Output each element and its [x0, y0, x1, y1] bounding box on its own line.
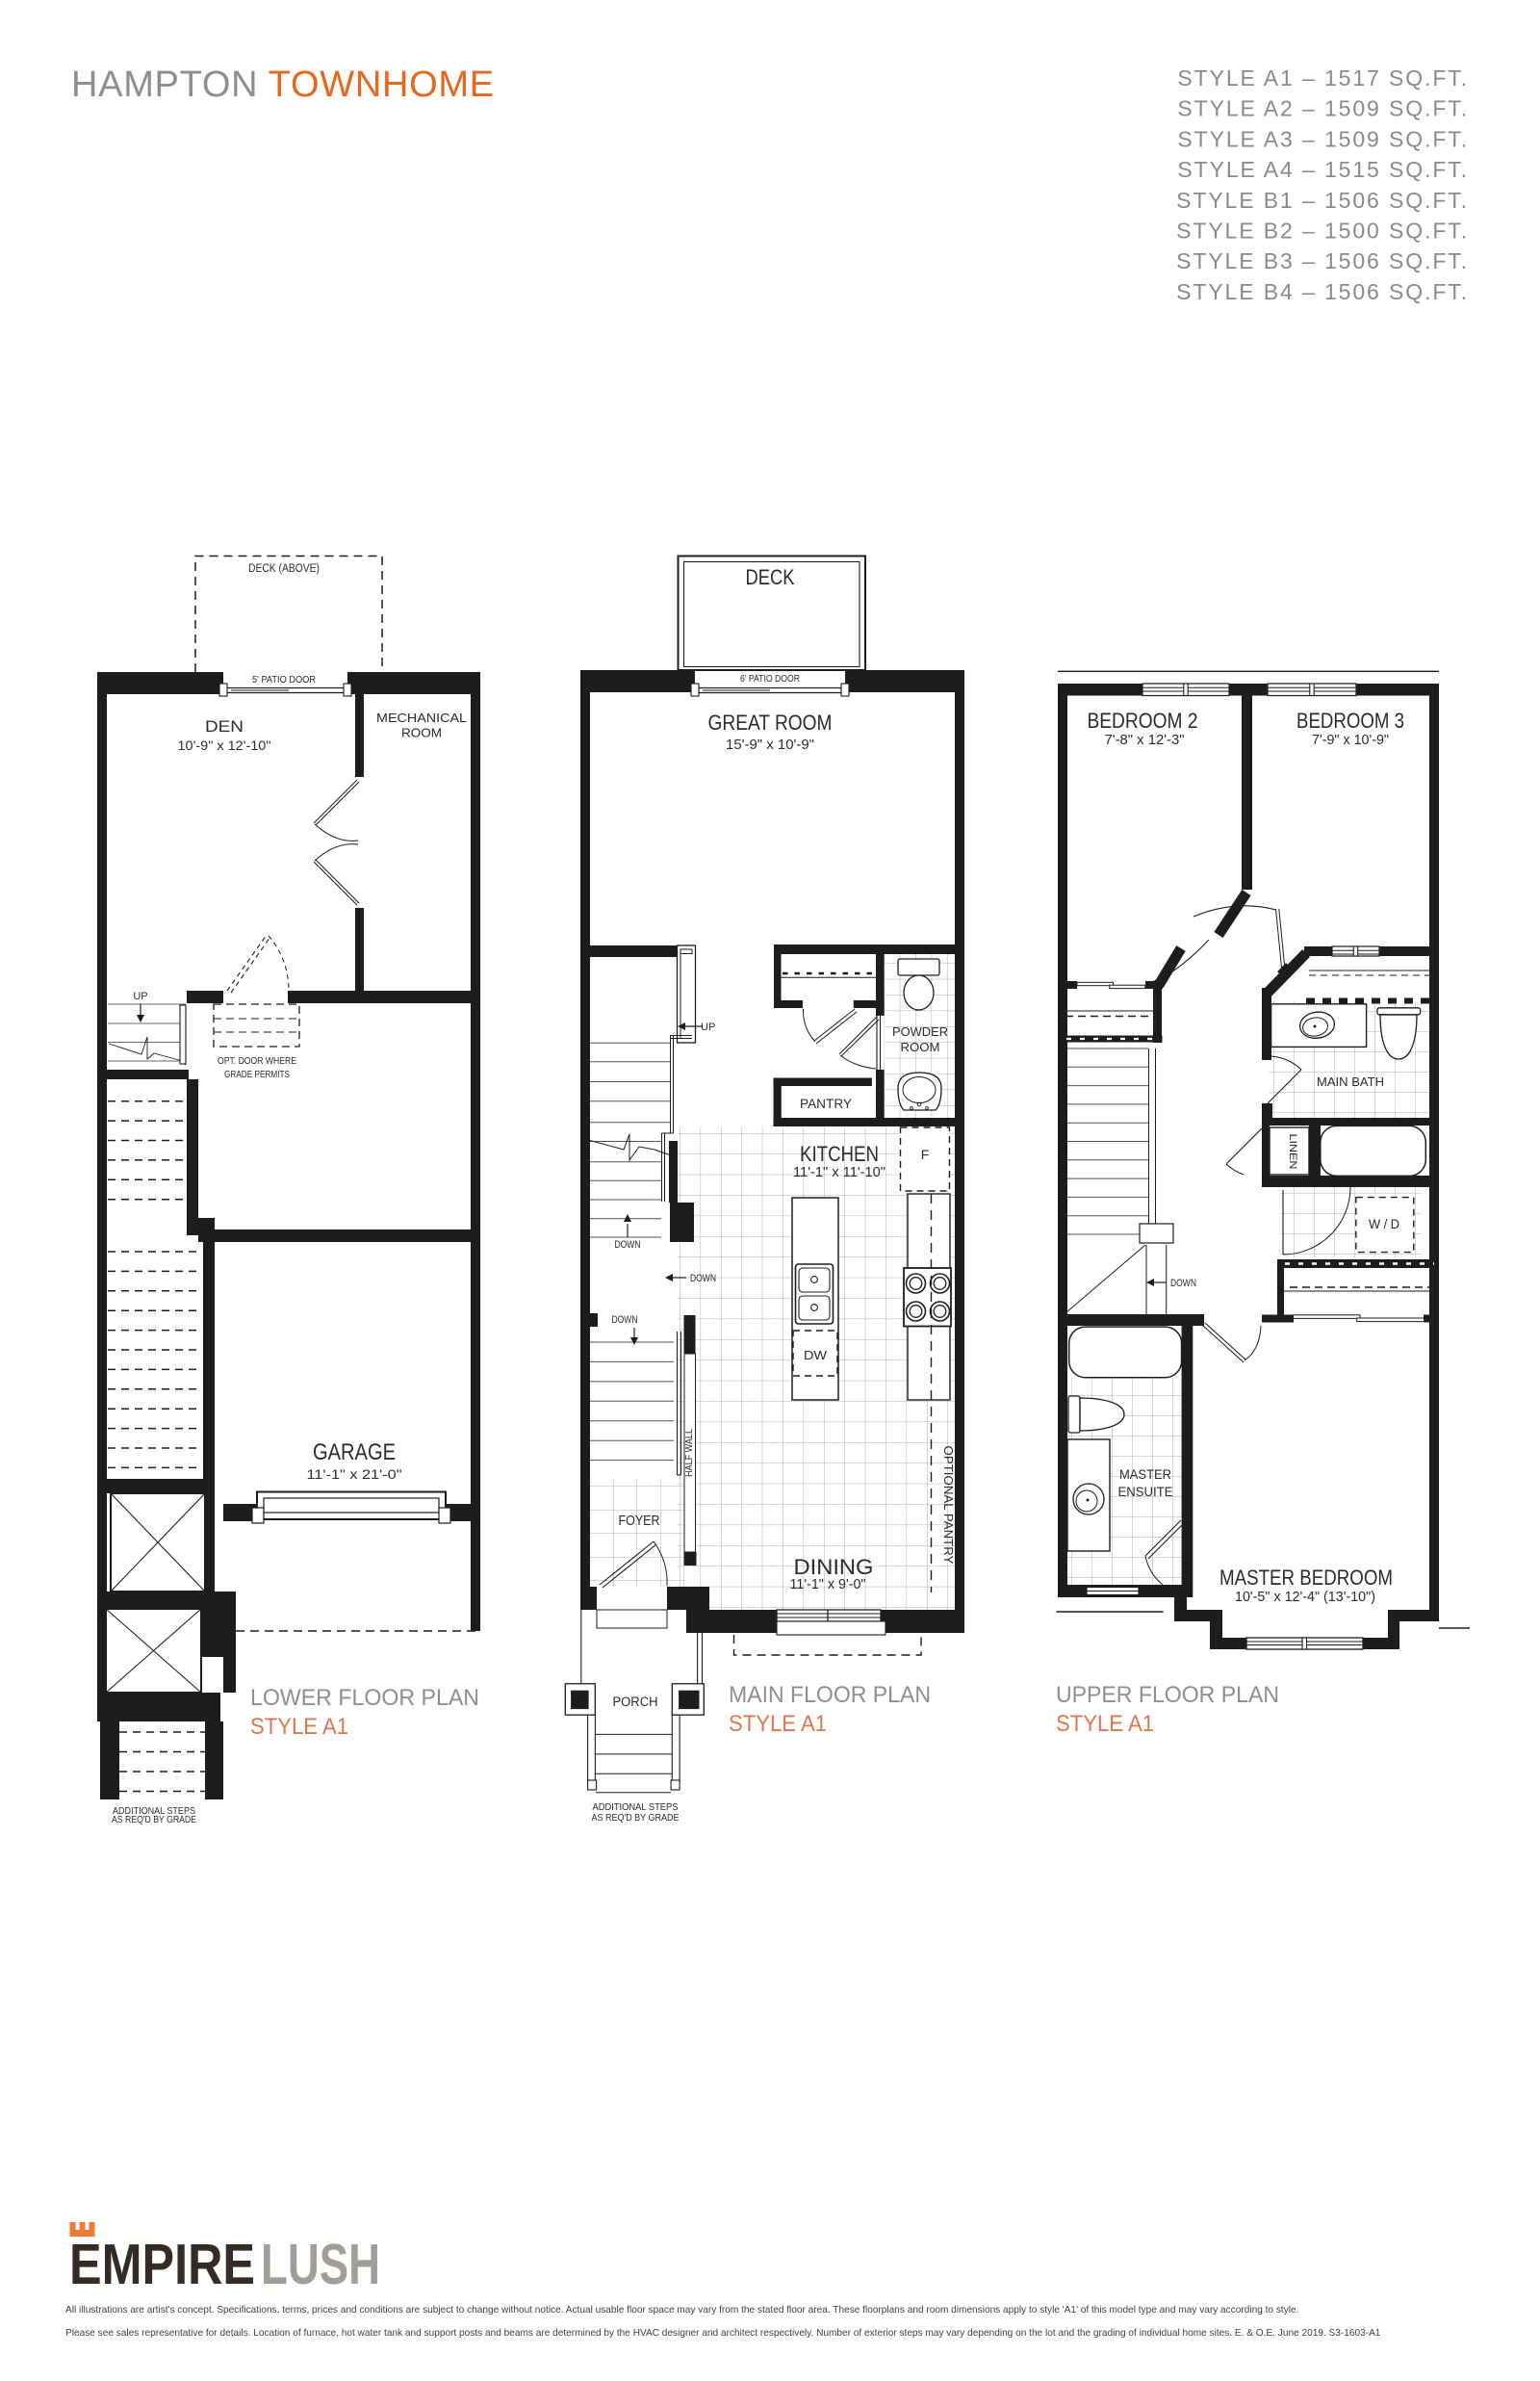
svg-text:STYLE B2 – 1500 SQ.FT.: STYLE B2 – 1500 SQ.FT. [1176, 219, 1469, 244]
svg-text:PORCH: PORCH [613, 1695, 658, 1709]
svg-text:BEDROOM 2: BEDROOM 2 [1088, 709, 1198, 733]
svg-text:DECK: DECK [746, 565, 795, 589]
svg-text:DW: DW [804, 1348, 828, 1362]
svg-text:STYLE A3 – 1509 SQ.FT.: STYLE A3 – 1509 SQ.FT. [1177, 126, 1469, 151]
svg-text:UPPER FLOOR PLAN: UPPER FLOOR PLAN [1056, 1682, 1279, 1708]
svg-text:UP: UP [701, 1022, 715, 1033]
svg-text:DOWN: DOWN [615, 1239, 641, 1251]
svg-text:LINEN: LINEN [1287, 1134, 1298, 1170]
svg-text:6' PATIO DOOR: 6' PATIO DOOR [740, 673, 800, 685]
svg-text:MASTER: MASTER [1119, 1467, 1171, 1482]
svg-text:LOWER FLOOR PLAN: LOWER FLOOR PLAN [250, 1685, 479, 1711]
svg-text:GRADE PERMITS: GRADE PERMITS [224, 1069, 290, 1080]
svg-text:11'-1" x 21'-0": 11'-1" x 21'-0" [307, 1466, 402, 1482]
svg-text:7'-9" x 10'-9": 7'-9" x 10'-9" [1312, 733, 1389, 748]
svg-text:10'-5" x 12'-4" (13'-10"): 10'-5" x 12'-4" (13'-10") [1235, 1590, 1375, 1605]
svg-text:HALF WALL: HALF WALL [684, 1429, 695, 1477]
svg-text:AS REQ'D BY GRADE: AS REQ'D BY GRADE [592, 1813, 680, 1824]
svg-text:DECK (ABOVE): DECK (ABOVE) [248, 563, 320, 575]
svg-text:MASTER BEDROOM: MASTER BEDROOM [1219, 1566, 1393, 1590]
svg-text:MAIN BATH: MAIN BATH [1317, 1074, 1384, 1089]
svg-text:STYLE A4 – 1515 SQ.FT.: STYLE A4 – 1515 SQ.FT. [1177, 157, 1469, 182]
svg-text:15'-9" x 10'-9": 15'-9" x 10'-9" [726, 738, 814, 753]
svg-text:STYLE A2 – 1509 SQ.FT.: STYLE A2 – 1509 SQ.FT. [1177, 96, 1469, 121]
svg-text:5' PATIO DOOR: 5' PATIO DOOR [252, 674, 316, 686]
svg-text:DINING: DINING [794, 1555, 874, 1579]
svg-text:ROOM: ROOM [901, 1040, 940, 1054]
svg-text:GARAGE: GARAGE [313, 1439, 396, 1465]
svg-text:ENSUITE: ENSUITE [1118, 1485, 1173, 1499]
svg-text:POWDER: POWDER [892, 1024, 948, 1039]
svg-text:DEN: DEN [205, 717, 244, 736]
svg-text:STYLE A1: STYLE A1 [1056, 1711, 1154, 1737]
svg-text:STYLE B4 – 1506 SQ.FT.: STYLE B4 – 1506 SQ.FT. [1176, 279, 1469, 304]
svg-text:FOYER: FOYER [619, 1513, 660, 1529]
svg-text:DOWN: DOWN [612, 1314, 638, 1326]
svg-text:OPT. DOOR WHERE: OPT. DOOR WHERE [218, 1055, 296, 1067]
svg-text:AS REQ'D BY GRADE: AS REQ'D BY GRADE [112, 1815, 196, 1825]
svg-text:STYLE A1 – 1517 SQ.FT.: STYLE A1 – 1517 SQ.FT. [1177, 65, 1469, 91]
svg-text:F: F [921, 1147, 930, 1162]
svg-text:HAMPTON TOWNHOME: HAMPTON TOWNHOME [71, 65, 495, 105]
svg-text:All illustrations are artist's: All illustrations are artist's concept. … [65, 2305, 1298, 2316]
svg-text:STYLE A1: STYLE A1 [250, 1714, 348, 1740]
svg-text:STYLE B1 – 1506 SQ.FT.: STYLE B1 – 1506 SQ.FT. [1176, 188, 1469, 213]
svg-text:GREAT ROOM: GREAT ROOM [708, 711, 833, 735]
svg-text:Please see sales representativ: Please see sales representative for deta… [65, 2328, 1381, 2339]
svg-text:DOWN: DOWN [690, 1273, 716, 1284]
svg-text:EMPIRE: EMPIRE [69, 2233, 255, 2296]
svg-text:MECHANICAL: MECHANICAL [376, 711, 467, 725]
svg-text:11'-1" x 11'-10": 11'-1" x 11'-10" [793, 1165, 885, 1180]
svg-text:STYLE B3 – 1506 SQ.FT.: STYLE B3 – 1506 SQ.FT. [1176, 248, 1469, 273]
svg-text:11'-1" x 9'-0": 11'-1" x 9'-0" [790, 1577, 866, 1592]
svg-text:ADDITIONAL STEPS: ADDITIONAL STEPS [593, 1802, 679, 1813]
svg-text:PANTRY: PANTRY [800, 1096, 853, 1111]
svg-text:KITCHEN: KITCHEN [800, 1142, 879, 1166]
svg-text:W / D: W / D [1369, 1217, 1399, 1231]
svg-text:MAIN FLOOR PLAN: MAIN FLOOR PLAN [729, 1682, 931, 1708]
svg-text:STYLE A1: STYLE A1 [729, 1711, 827, 1737]
svg-text:OPTIONAL PANTRY: OPTIONAL PANTRY [941, 1446, 955, 1566]
svg-text:ROOM: ROOM [401, 726, 442, 740]
svg-text:DOWN: DOWN [1170, 1278, 1196, 1289]
svg-text:BEDROOM 3: BEDROOM 3 [1296, 709, 1404, 733]
svg-text:7'-8" x 12'-3": 7'-8" x 12'-3" [1105, 733, 1185, 748]
svg-text:UP: UP [133, 991, 147, 1002]
svg-text:LUSH: LUSH [261, 2233, 380, 2296]
svg-text:10'-9" x 12'-10": 10'-9" x 12'-10" [178, 738, 271, 753]
